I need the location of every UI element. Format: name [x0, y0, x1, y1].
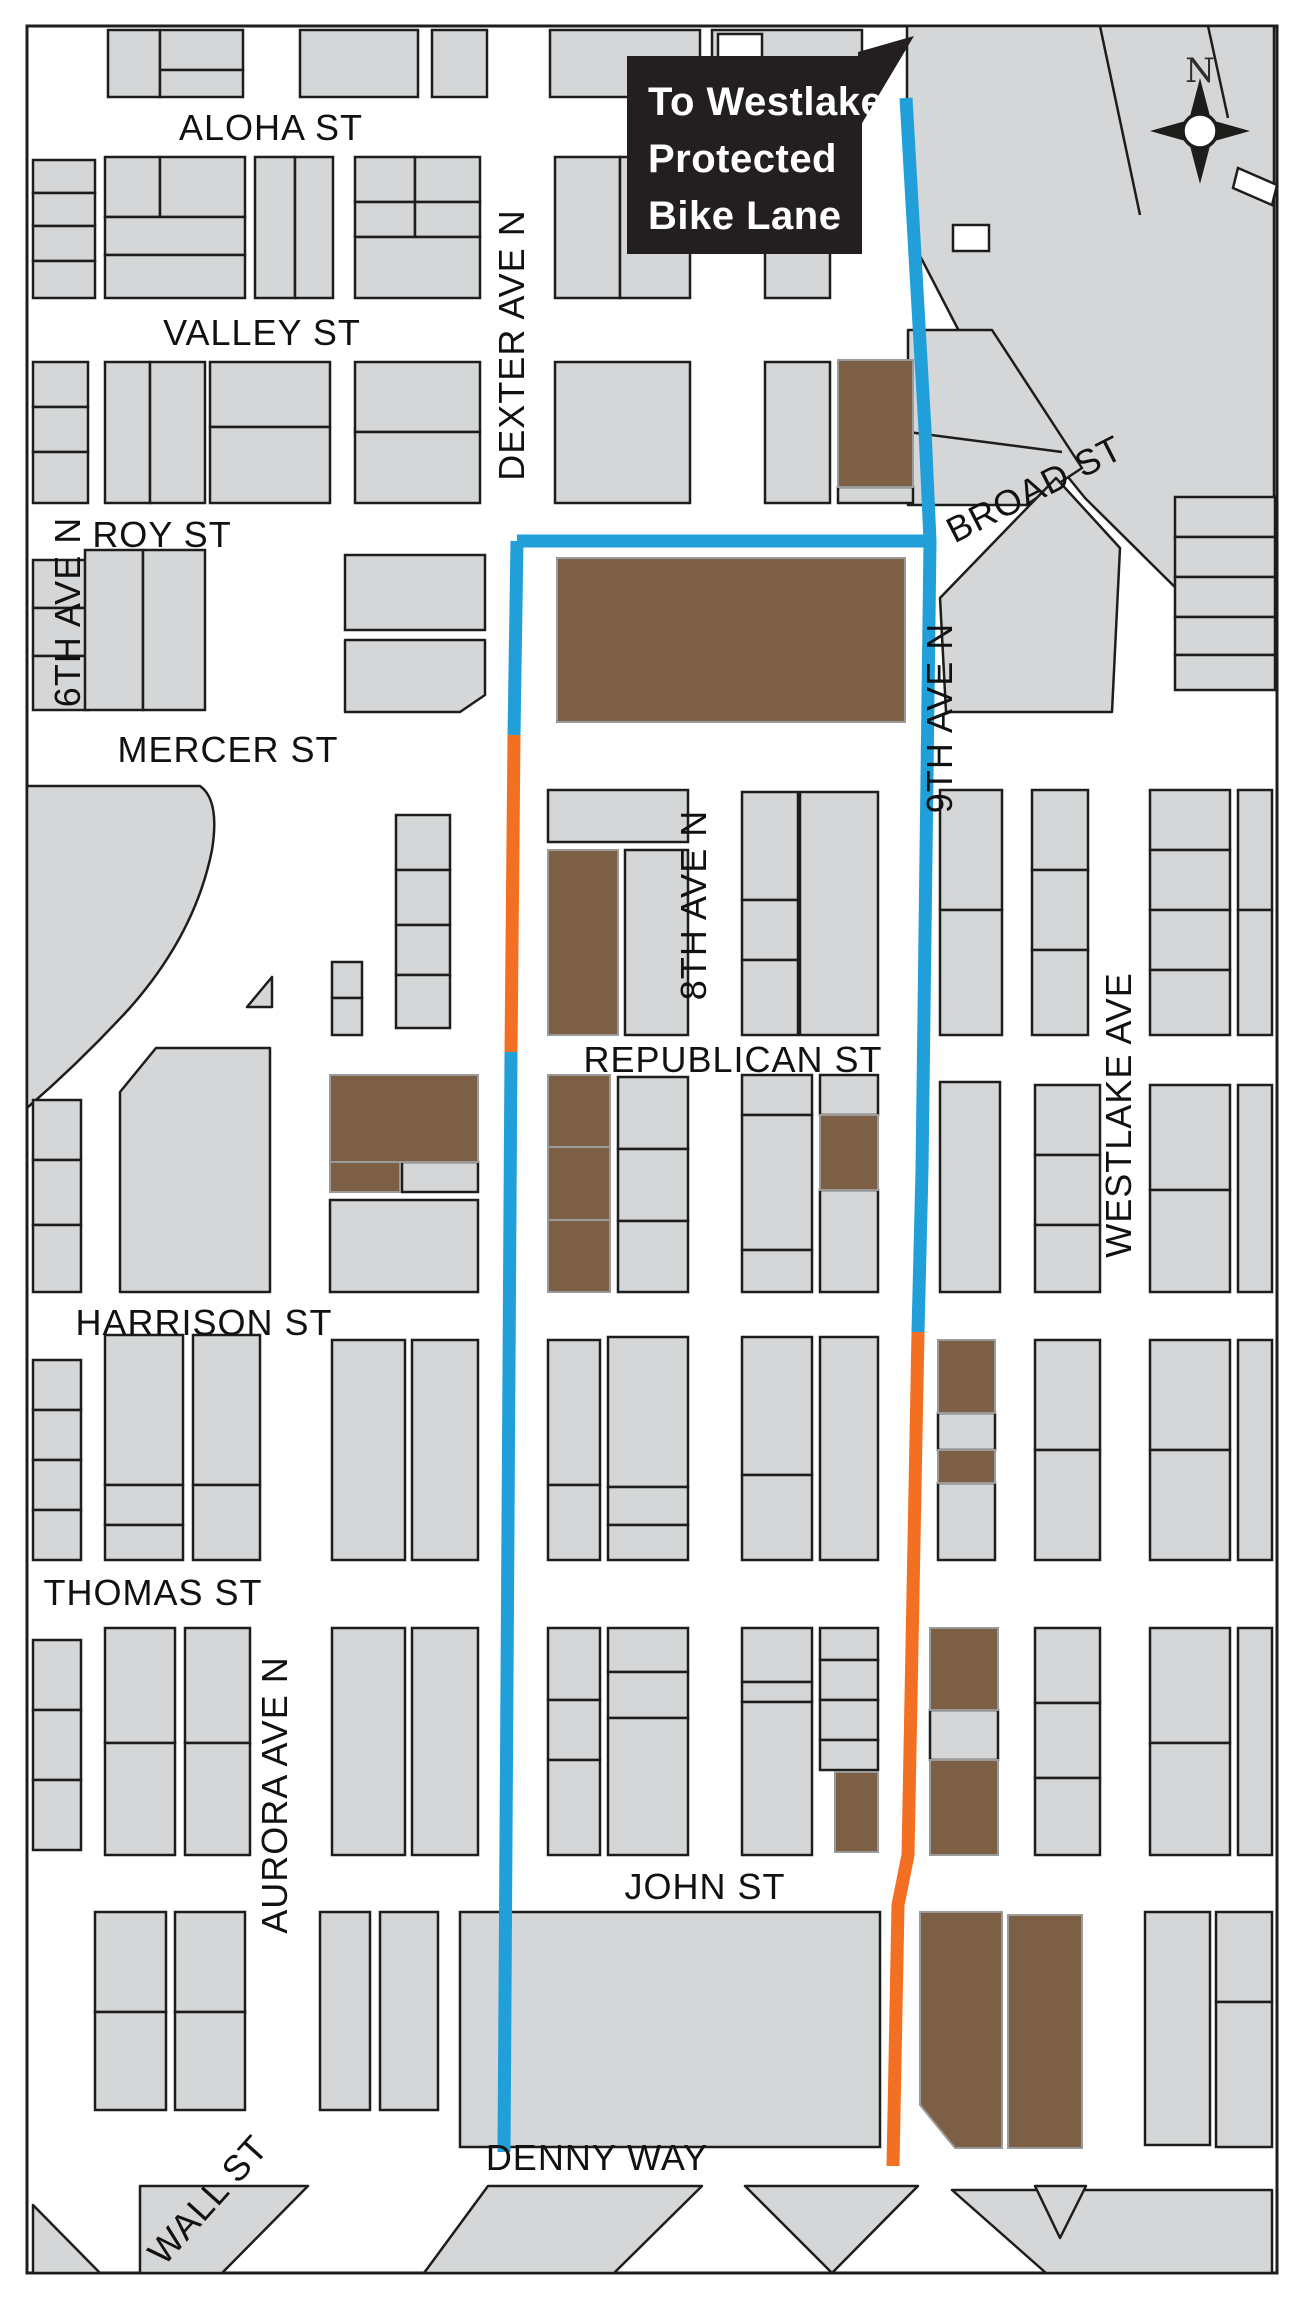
- city-block: [33, 1710, 81, 1780]
- city-block: [940, 910, 1002, 1035]
- city-block: [160, 70, 243, 97]
- street-label-aloha: ALOHA ST: [179, 107, 363, 148]
- city-block: [1032, 870, 1088, 950]
- city-block: [295, 157, 333, 298]
- city-block: [1150, 850, 1230, 910]
- city-block: [1150, 790, 1230, 850]
- street-label-roy: ROY ST: [92, 514, 231, 555]
- city-block: [1150, 1190, 1230, 1292]
- city-block: [355, 157, 415, 202]
- city-block: [380, 1912, 438, 2110]
- city-block: [185, 1743, 250, 1855]
- city-block: [555, 157, 620, 298]
- street-label-john: JOHN ST: [624, 1866, 785, 1907]
- city-block: [175, 2012, 245, 2110]
- city-block: [1175, 617, 1275, 655]
- city-block: [175, 1912, 245, 2012]
- city-block: [608, 1525, 688, 1560]
- highlighted-parcel: [330, 1075, 478, 1162]
- city-block: [742, 1115, 812, 1250]
- white-notch: [953, 225, 989, 251]
- city-block: [300, 30, 418, 97]
- city-block: [555, 362, 690, 503]
- city-block: [938, 1483, 995, 1560]
- city-block: [105, 1525, 183, 1560]
- callout-line-1: To Westlake: [648, 74, 852, 131]
- city-block: [608, 1337, 688, 1487]
- city-block: [105, 362, 150, 503]
- city-block: [33, 1225, 81, 1292]
- highlighted-parcel: [930, 1628, 998, 1710]
- street-label-harrison: HARRISON ST: [75, 1302, 332, 1343]
- city-block: [1035, 1628, 1100, 1703]
- city-block: [1150, 970, 1230, 1035]
- city-block: [105, 1335, 183, 1485]
- city-block: [1216, 1912, 1272, 2002]
- city-block: [193, 1335, 260, 1485]
- callout-line-3: Bike Lane: [648, 188, 852, 245]
- city-block: [820, 1190, 878, 1292]
- city-block: [320, 1912, 370, 2110]
- city-block: [618, 1149, 688, 1221]
- street-label-republican: REPUBLICAN ST: [583, 1039, 882, 1080]
- city-block: [210, 427, 330, 503]
- city-block: [105, 1485, 183, 1525]
- city-block: [930, 1710, 998, 1760]
- city-block: [618, 1077, 688, 1149]
- city-block: [548, 1628, 600, 1700]
- city-block: [608, 1487, 688, 1525]
- city-block: [1150, 1743, 1230, 1855]
- city-block: [820, 1660, 878, 1700]
- city-block: [33, 1640, 81, 1710]
- avenue-label-8th: 8TH AVE N: [673, 810, 714, 1000]
- city-block: [210, 362, 330, 427]
- city-block: [1238, 1085, 1272, 1292]
- bike-route-segment-orange: [511, 735, 514, 1052]
- city-block: [820, 1337, 878, 1560]
- city-block: [742, 1682, 812, 1702]
- city-block: [1238, 1340, 1272, 1560]
- city-block: [742, 960, 798, 1035]
- highlighted-parcel: [938, 1340, 995, 1413]
- city-block: [1150, 1085, 1230, 1190]
- city-block: [355, 432, 480, 503]
- avenue-label-dexter: DEXTER AVE N: [491, 209, 532, 480]
- city-block: [820, 1740, 878, 1770]
- city-block: [1238, 790, 1272, 910]
- city-block: [1175, 497, 1275, 537]
- avenue-label-aurora: AURORA AVE N: [254, 1656, 295, 1933]
- city-block: [742, 900, 798, 960]
- city-block: [1035, 1703, 1100, 1778]
- city-block: [1035, 1450, 1100, 1560]
- highlighted-parcel: [548, 1147, 610, 1220]
- city-block: [95, 1912, 166, 2012]
- city-block: [160, 30, 243, 70]
- city-block: [415, 202, 480, 237]
- highlighted-parcel: [330, 1162, 400, 1192]
- city-block: [1150, 1450, 1230, 1560]
- highlighted-parcel: [557, 558, 905, 722]
- city-block: [765, 362, 830, 503]
- city-block: [33, 1460, 81, 1510]
- city-block: [548, 1340, 600, 1485]
- highlighted-parcel: [548, 1220, 610, 1292]
- city-block: [1238, 1628, 1272, 1855]
- city-block: [345, 555, 485, 630]
- city-block: [742, 1075, 812, 1115]
- city-block: [1150, 1340, 1230, 1450]
- city-block: [95, 2012, 166, 2110]
- city-block: [1035, 1085, 1100, 1155]
- city-block: [33, 1100, 81, 1160]
- city-block: [33, 1410, 81, 1460]
- city-block: [1238, 910, 1272, 1035]
- city-block: [332, 998, 362, 1035]
- city-block: [742, 1628, 812, 1682]
- city-block: [193, 1485, 260, 1560]
- city-block: [415, 157, 480, 202]
- city-block: [548, 1760, 600, 1855]
- city-block: [1175, 537, 1275, 577]
- city-block: [105, 1743, 175, 1855]
- city-block: [608, 1718, 688, 1855]
- city-block: [1035, 1155, 1100, 1225]
- city-block: [1150, 1628, 1230, 1743]
- city-block: [402, 1162, 478, 1192]
- city-block: [396, 925, 450, 975]
- city-block: [33, 261, 95, 298]
- map-canvas: ALOHA STVALLEY STROY STMERCER STREPUBLIC…: [0, 0, 1299, 2297]
- city-block: [85, 550, 143, 710]
- city-block: [412, 1628, 478, 1855]
- highlighted-parcel: [838, 360, 913, 487]
- avenue-label-westlake: WESTLAKE AVE: [1098, 972, 1139, 1257]
- city-block: [33, 160, 95, 193]
- city-block: [940, 1082, 1000, 1292]
- bike-route-existing-blue: [504, 1052, 511, 2152]
- avenue-label-9th: 9TH AVE N: [919, 623, 960, 813]
- street-label-thomas: THOMAS ST: [43, 1572, 262, 1613]
- highlighted-parcel: [548, 850, 618, 1035]
- bike-route-existing-blue: [514, 541, 517, 735]
- city-block: [608, 1628, 688, 1672]
- city-block: [332, 1340, 405, 1560]
- white-notch: [718, 34, 762, 58]
- city-block: [330, 1200, 478, 1292]
- highlighted-parcel: [930, 1760, 998, 1855]
- city-block: [120, 1048, 270, 1292]
- city-block: [1145, 1912, 1210, 2145]
- city-block: [742, 1702, 812, 1855]
- city-block: [838, 487, 913, 503]
- compass-north-letter: N: [1185, 51, 1215, 91]
- city-block: [105, 255, 245, 298]
- city-block: [345, 640, 485, 712]
- street-label-valley: VALLEY ST: [163, 312, 361, 353]
- city-block: [332, 962, 362, 998]
- city-block: [742, 1475, 812, 1560]
- city-block: [820, 1700, 878, 1740]
- city-block: [432, 30, 487, 97]
- city-block: [105, 157, 160, 217]
- city-block: [33, 452, 88, 503]
- avenue-label-6th: 6TH AVE N: [47, 517, 88, 707]
- highlighted-parcel: [938, 1450, 995, 1483]
- city-block: [33, 407, 88, 452]
- compass-circle-icon: [1183, 114, 1217, 148]
- city-block: [143, 550, 205, 710]
- city-block: [33, 362, 88, 407]
- highlighted-parcel: [548, 1075, 610, 1147]
- city-block: [105, 217, 245, 255]
- street-map: ALOHA STVALLEY STROY STMERCER STREPUBLIC…: [0, 0, 1299, 2297]
- city-block: [33, 193, 95, 226]
- city-block: [742, 1337, 812, 1475]
- city-block: [548, 790, 688, 842]
- city-block: [1035, 1778, 1100, 1855]
- city-block: [1150, 910, 1230, 970]
- city-block: [185, 1628, 250, 1743]
- city-block: [33, 226, 95, 261]
- city-block: [548, 1700, 600, 1760]
- city-block: [618, 1221, 688, 1292]
- city-block: [820, 1075, 878, 1115]
- city-block: [396, 870, 450, 925]
- city-block: [108, 30, 160, 97]
- city-block: [1035, 1340, 1100, 1450]
- city-block: [742, 1250, 812, 1292]
- city-block: [938, 1413, 995, 1450]
- city-block: [33, 1510, 81, 1560]
- city-block: [355, 202, 415, 237]
- highlighted-parcel: [835, 1772, 878, 1852]
- street-label-mercer: MERCER ST: [117, 729, 338, 770]
- city-block: [255, 157, 295, 298]
- city-block: [355, 362, 480, 432]
- city-block: [150, 362, 205, 503]
- highlighted-parcel: [820, 1115, 878, 1190]
- street-label-denny: DENNY WAY: [486, 2137, 708, 2178]
- city-block: [33, 1160, 81, 1225]
- city-block: [33, 1780, 81, 1850]
- city-block: [800, 792, 878, 1035]
- city-block: [412, 1340, 478, 1560]
- city-block: [742, 792, 798, 900]
- city-block: [33, 1360, 81, 1410]
- city-block: [820, 1628, 878, 1660]
- city-block: [332, 1628, 405, 1855]
- city-block: [160, 157, 245, 217]
- city-block: [1032, 950, 1088, 1035]
- city-block: [396, 975, 450, 1028]
- city-block: [1032, 790, 1088, 870]
- city-block: [548, 1485, 600, 1560]
- city-block: [396, 815, 450, 870]
- callout-line-2: Protected: [648, 131, 852, 188]
- city-block: [1175, 577, 1275, 617]
- city-block: [608, 1672, 688, 1718]
- callout-to-westlake: To Westlake Protected Bike Lane: [627, 56, 862, 254]
- city-block: [355, 237, 480, 298]
- city-block: [460, 1912, 880, 2147]
- city-block: [1035, 1225, 1100, 1292]
- highlighted-parcel: [1008, 1915, 1082, 2148]
- highlighted-parcel: [920, 1912, 1002, 2148]
- city-block: [1175, 655, 1275, 690]
- city-block: [105, 1628, 175, 1743]
- city-block: [1216, 2002, 1272, 2147]
